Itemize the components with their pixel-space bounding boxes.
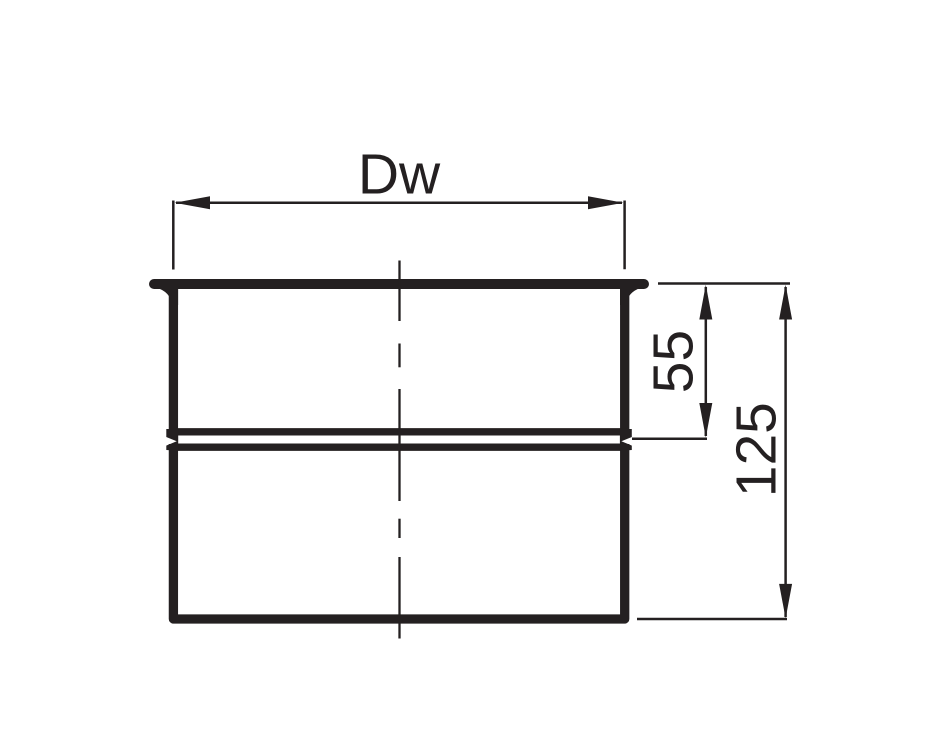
svg-text:55: 55 bbox=[642, 330, 706, 393]
svg-text:Dw: Dw bbox=[358, 143, 441, 207]
svg-text:125: 125 bbox=[725, 402, 789, 497]
